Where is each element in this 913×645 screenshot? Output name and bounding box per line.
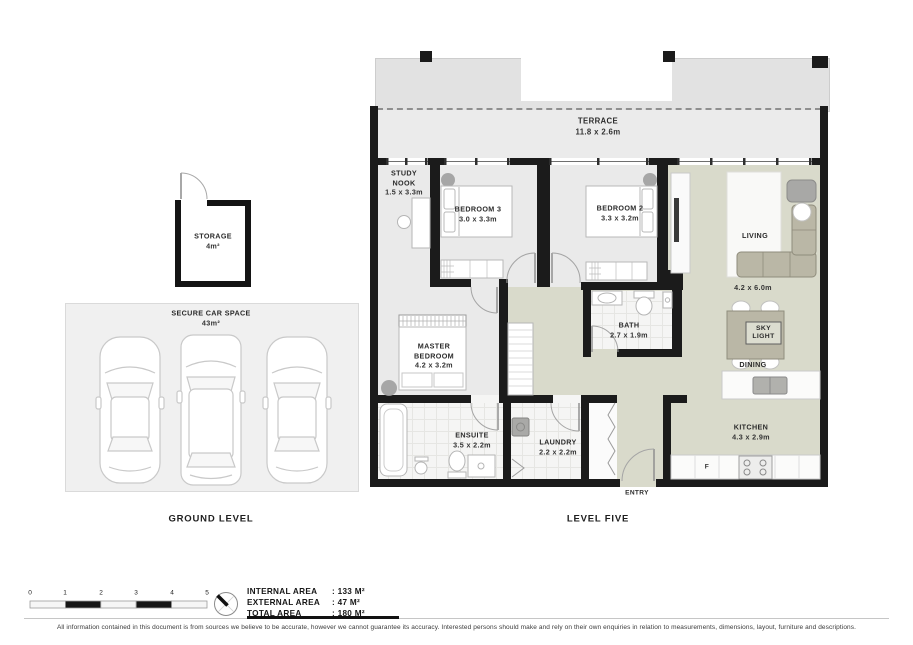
car-icon-middle [177, 335, 245, 485]
scale-tick-0: 0 [28, 590, 32, 597]
floor-plan-drawing [0, 0, 913, 645]
car-icon-right [263, 337, 331, 483]
room-label-terrace: TERRACE11.8 x 2.6m [575, 116, 620, 137]
entry-wardrobe-bifold [608, 403, 615, 475]
room-label-master-bedroom: MASTERBEDROOM 4.2 x 3.2m [414, 341, 454, 370]
wardrobe-bedroom2 [586, 262, 647, 280]
room-label-bedroom3: BEDROOM 33.0 x 3.3m [455, 204, 502, 223]
footer-divider [24, 618, 889, 619]
compass-icon [215, 593, 238, 616]
room-label-laundry: LAUNDRY2.2 x 2.2m [539, 437, 577, 456]
room-dims-living: 4.2 x 6.0m [734, 283, 772, 293]
bath-fixtures [592, 291, 672, 315]
ground-level-title: GROUND LEVEL [168, 514, 253, 525]
total-area-underline [247, 616, 399, 618]
room-label-study-nook: STUDYNOOK 1.5 x 3.3m [385, 168, 423, 197]
window-band [386, 158, 812, 165]
floor-plan-page: TERRACE11.8 x 2.6m STUDYNOOK 1.5 x 3.3m … [0, 0, 913, 645]
tv-unit [671, 173, 690, 273]
scale-tick-3: 3 [134, 590, 138, 597]
room-label-bath: BATH2.7 x 1.9m [610, 320, 648, 339]
storage-room [178, 173, 248, 284]
level-five-title: LEVEL FIVE [567, 514, 629, 525]
laundry-fixtures [512, 418, 529, 477]
scale-tick-1: 1 [63, 590, 67, 597]
storage-label: STORAGE4m² [194, 231, 232, 250]
side-table [793, 203, 811, 221]
room-label-dining: DINING [739, 360, 766, 370]
hall-cabinet [508, 323, 533, 395]
car-icons [96, 335, 331, 485]
skylight-label: SKYLIGHT [752, 325, 774, 341]
fridge-label: F [705, 464, 709, 473]
scale-tick-4: 4 [170, 590, 174, 597]
room-label-ensuite: ENSUITE3.5 x 2.2m [453, 430, 491, 449]
room-label-kitchen: KITCHEN4.3 x 2.9m [732, 422, 770, 441]
armchair [787, 180, 816, 202]
car-space-label: SECURE CAR SPACE43m² [171, 308, 250, 327]
external-area-row: EXTERNAL AREA: 47 M² [247, 598, 360, 607]
wardrobe-bedroom3 [441, 260, 503, 278]
scale-bar [30, 601, 207, 608]
disclaimer-text: All information contained in this docume… [0, 624, 913, 631]
scale-tick-5: 5 [205, 590, 209, 597]
entry-label: ENTRY [625, 490, 649, 499]
room-label-living: LIVING [742, 231, 768, 241]
room-label-bedroom2: BEDROOM 23.3 x 3.2m [597, 203, 644, 222]
car-icon-left [96, 337, 164, 483]
scale-tick-2: 2 [99, 590, 103, 597]
internal-area-row: INTERNAL AREA: 133 M² [247, 587, 365, 596]
desk [412, 198, 430, 248]
